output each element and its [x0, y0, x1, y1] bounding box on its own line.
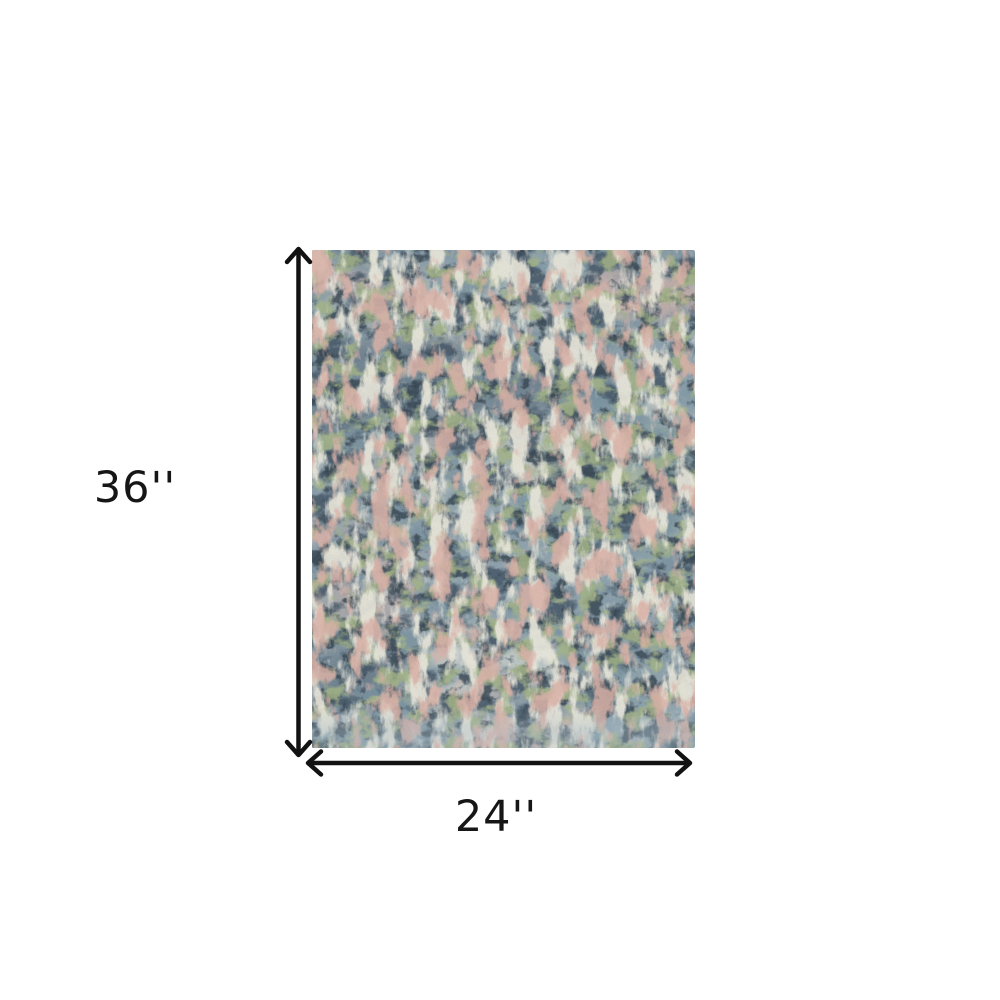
rug-texture-art [312, 250, 695, 748]
width-dimension-arrow [308, 752, 690, 775]
height-dimension-label: 36'' [70, 461, 200, 515]
dimension-diagram: 36'' 24'' [0, 0, 1000, 1000]
width-dimension-label: 24'' [431, 790, 561, 844]
rug-product-image [312, 250, 695, 748]
height-dimension-arrow [287, 249, 310, 755]
